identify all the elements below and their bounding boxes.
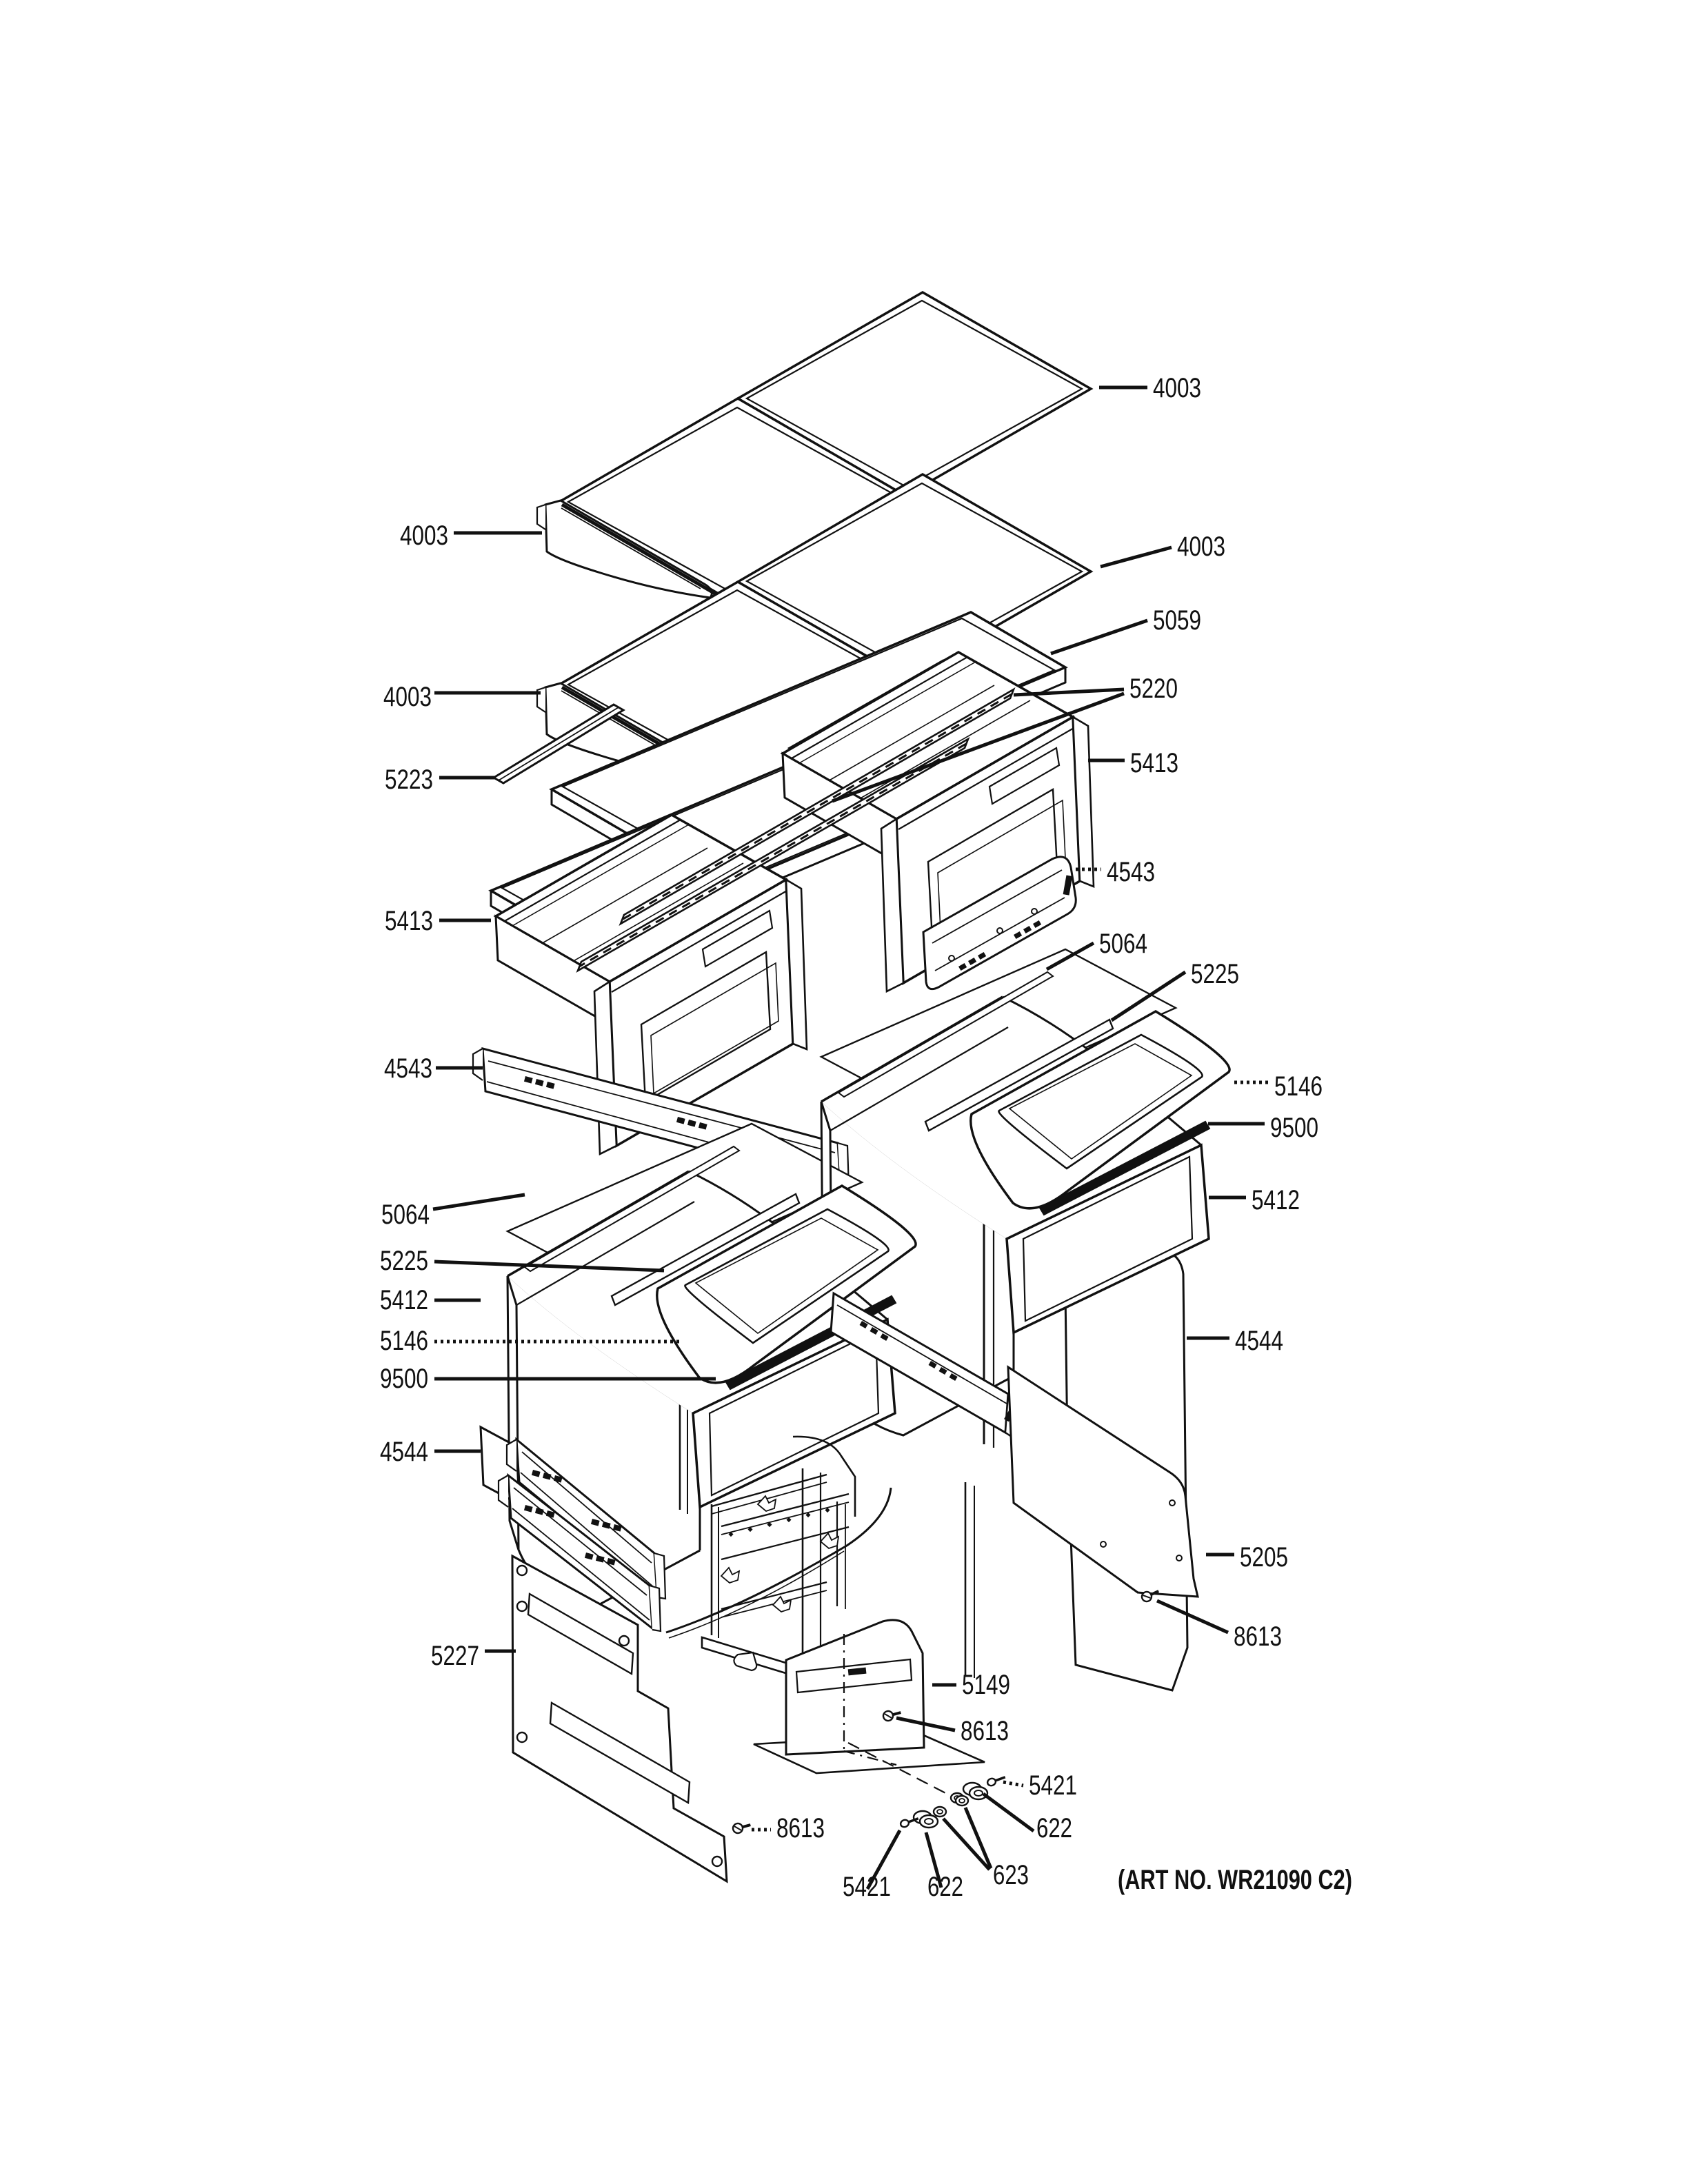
svg-text:5412: 5412	[1252, 1185, 1300, 1215]
svg-text:5205: 5205	[1240, 1542, 1288, 1573]
svg-text:4003: 4003	[383, 682, 432, 712]
svg-text:5149: 5149	[962, 1670, 1010, 1700]
svg-text:4003: 4003	[400, 520, 448, 551]
svg-text:8613: 8613	[961, 1716, 1009, 1746]
svg-text:4003: 4003	[1153, 373, 1201, 403]
svg-text:5064: 5064	[381, 1200, 430, 1230]
svg-text:8613: 8613	[776, 1813, 825, 1843]
svg-text:5421: 5421	[843, 1872, 891, 1902]
svg-text:623: 623	[993, 1860, 1029, 1890]
svg-text:622: 622	[927, 1872, 963, 1902]
svg-text:5223: 5223	[385, 765, 433, 795]
svg-text:5413: 5413	[1130, 748, 1178, 778]
svg-text:622: 622	[1036, 1813, 1072, 1843]
svg-text:4543: 4543	[1107, 857, 1155, 887]
svg-text:5225: 5225	[1191, 959, 1239, 989]
svg-text:8613: 8613	[1234, 1621, 1282, 1652]
svg-text:9500: 9500	[380, 1364, 428, 1394]
svg-text:4543: 4543	[384, 1053, 432, 1084]
svg-text:5146: 5146	[1274, 1071, 1323, 1102]
svg-text:5227: 5227	[431, 1641, 479, 1671]
svg-text:5146: 5146	[380, 1326, 428, 1356]
svg-text:5225: 5225	[380, 1246, 428, 1276]
svg-text:4544: 4544	[1235, 1326, 1283, 1356]
svg-text:(ART NO. WR21090 C2): (ART NO. WR21090 C2)	[1118, 1865, 1352, 1895]
svg-text:5412: 5412	[380, 1285, 428, 1315]
svg-text:5220: 5220	[1129, 674, 1178, 704]
svg-text:5421: 5421	[1029, 1770, 1077, 1801]
svg-text:4003: 4003	[1177, 532, 1225, 562]
svg-text:5059: 5059	[1153, 605, 1201, 636]
svg-text:4544: 4544	[380, 1437, 428, 1467]
svg-text:5413: 5413	[385, 906, 433, 936]
svg-text:9500: 9500	[1270, 1113, 1318, 1143]
svg-text:5064: 5064	[1099, 929, 1147, 959]
